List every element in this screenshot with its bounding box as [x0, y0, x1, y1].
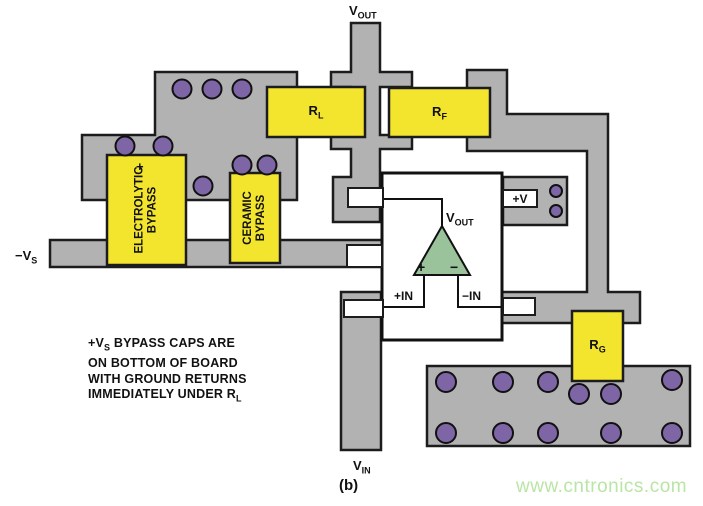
ceramic-bypass-label: CERAMIC BYPASS	[230, 173, 280, 263]
rl-label: RL	[267, 87, 365, 137]
minus-vs-label: −VS	[15, 249, 37, 266]
plus-v-label: +V	[503, 190, 537, 207]
via	[538, 423, 558, 443]
via	[116, 137, 135, 156]
via	[662, 423, 682, 443]
via	[233, 80, 252, 99]
watermark: www.cntronics.com	[516, 476, 687, 498]
electrolytic-bypass-label: ELECTROLYTIC BYPASS	[107, 155, 186, 265]
via	[436, 423, 456, 443]
via	[203, 80, 222, 99]
opamp-minus-in-pad	[503, 298, 535, 315]
via	[194, 177, 213, 196]
plus-in-label: +IN	[394, 290, 413, 302]
via	[493, 372, 513, 392]
pcb-artwork	[0, 0, 703, 506]
rf-label: RF	[389, 88, 490, 137]
electrolytic-polarity-plus: +	[136, 159, 144, 174]
opamp-vout-label: VOUT	[446, 211, 474, 228]
vin-label: VIN	[353, 459, 371, 476]
minus-vs-trace	[50, 240, 385, 267]
via	[233, 156, 252, 175]
via	[550, 185, 562, 197]
opamp-minus-vs-pad	[347, 245, 382, 267]
opamp-plus-in-pad	[344, 300, 383, 317]
opamp-minus-sign: −	[450, 259, 458, 275]
via	[662, 370, 682, 390]
via	[173, 80, 192, 99]
pcb-layout-diagram: VOUT −VS VIN RL RF RG ELECTROLYTIC BYPAS…	[0, 0, 703, 506]
opamp-plus-sign: +	[417, 259, 425, 275]
via	[436, 372, 456, 392]
rg-label: RG	[572, 311, 623, 381]
opamp-vout-pad	[348, 188, 383, 207]
via	[538, 372, 558, 392]
bypass-note: +VS BYPASS CAPS ARE ON BOTTOM OF BOARD W…	[88, 336, 247, 407]
via	[258, 156, 277, 175]
minus-in-label: −IN	[462, 290, 481, 302]
via	[154, 137, 173, 156]
via	[601, 423, 621, 443]
vout-top-label: VOUT	[349, 4, 377, 21]
via	[569, 384, 589, 404]
figure-caption: (b)	[339, 477, 358, 494]
via	[601, 384, 621, 404]
via	[493, 423, 513, 443]
via	[550, 205, 562, 217]
